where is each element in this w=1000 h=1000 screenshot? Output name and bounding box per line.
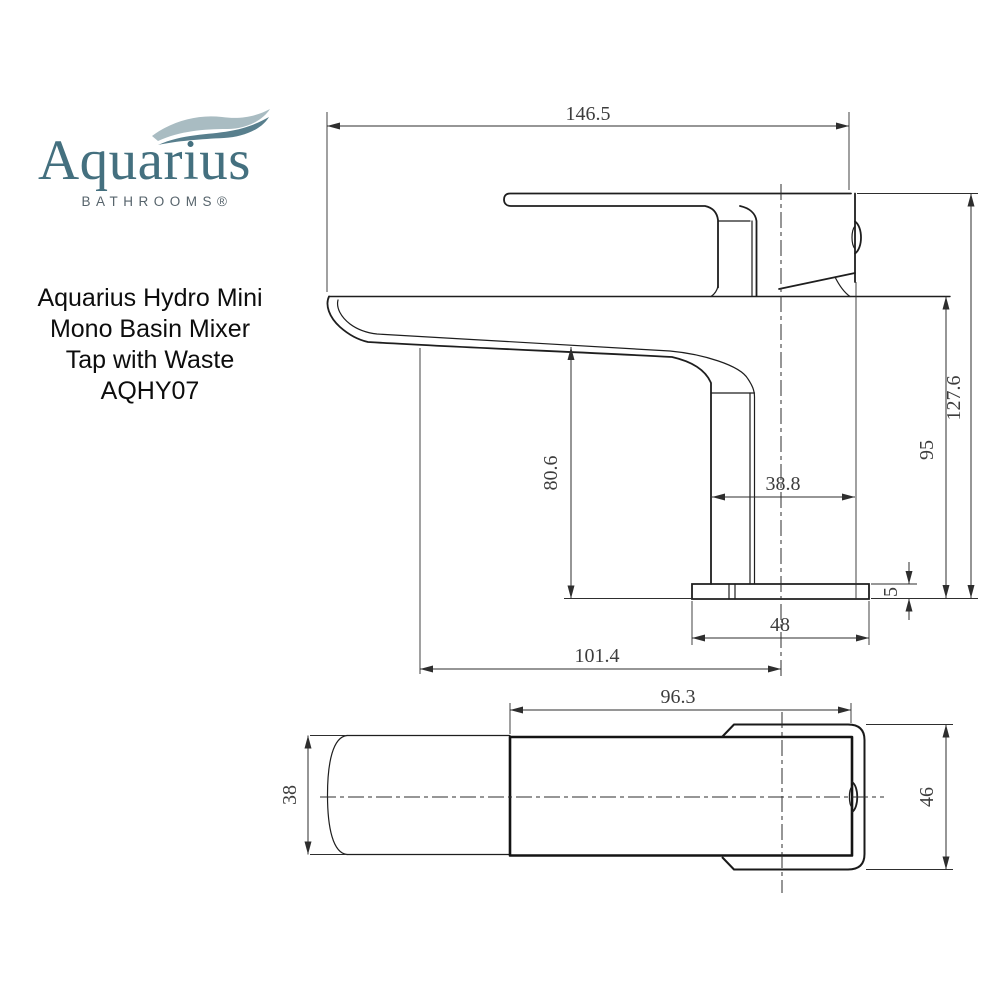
handle-lever-outline bbox=[504, 194, 851, 297]
spout-outline bbox=[327, 297, 754, 585]
dim-body-length: 96.3 bbox=[510, 686, 851, 734]
page: Aquarius BATHROOMS® Aquarius Hydro Mini … bbox=[0, 0, 1000, 1000]
dim-spout-offset: 38.8 bbox=[712, 282, 856, 599]
side-view: 146.5 127.6 95 80.6 38.8 bbox=[327, 103, 978, 676]
dim-label-handle-width: 38 bbox=[279, 785, 301, 805]
dim-height-to-spout: 95 bbox=[916, 297, 946, 599]
handle-plan-outline bbox=[328, 736, 511, 855]
dim-label-spout-clearance: 80.6 bbox=[540, 456, 562, 491]
dim-label-body-length: 96.3 bbox=[661, 686, 696, 708]
dim-label-spout-offset: 38.8 bbox=[766, 473, 801, 495]
dim-spout-clearance: 80.6 bbox=[540, 347, 571, 599]
dim-overall-height: 127.6 bbox=[857, 194, 978, 599]
top-view: 96.3 38 46 bbox=[279, 686, 953, 893]
dim-handle-width: 38 bbox=[279, 736, 346, 855]
aerator-outline bbox=[852, 222, 861, 254]
dim-label-flange-width: 46 bbox=[916, 787, 938, 807]
dim-label-overall-length: 146.5 bbox=[566, 103, 611, 125]
mixer-body-outline bbox=[779, 194, 855, 297]
dim-label-base-thickness: 5 bbox=[880, 587, 902, 597]
dim-spout-reach: 101.4 bbox=[420, 348, 781, 674]
dim-label-spout-reach: 101.4 bbox=[575, 645, 620, 667]
dim-label-height-to-spout: 95 bbox=[916, 440, 938, 460]
dim-base-thickness: 5 bbox=[871, 562, 978, 620]
dim-overall-length: 146.5 bbox=[327, 103, 849, 292]
dim-flange-width: 46 bbox=[866, 725, 953, 870]
body-plan-outline bbox=[510, 737, 852, 856]
technical-drawing: 146.5 127.6 95 80.6 38.8 bbox=[0, 0, 1000, 1000]
dim-label-base-width: 48 bbox=[770, 614, 790, 636]
